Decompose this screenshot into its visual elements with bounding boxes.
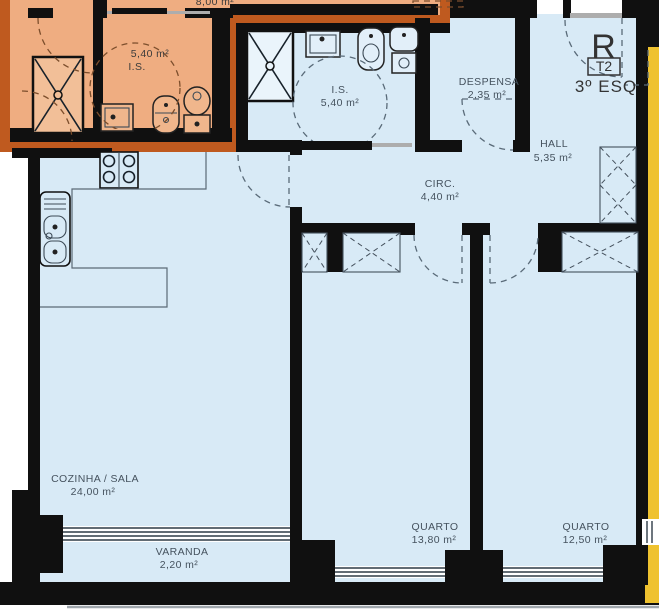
toilet-symbol [390, 27, 418, 73]
is-sliding-door-panel [300, 141, 372, 150]
circ-name-label: CIRC. [425, 178, 456, 190]
quarto2-window [503, 566, 603, 578]
is-name-label: I.S. [331, 84, 348, 96]
floor-plan-page: 8,00 m² 5,40 m² I.S. I.S. 5,40 m² DESPEN… [0, 0, 659, 609]
bidet-symbol [358, 28, 384, 70]
circ-area-label: 4,40 m² [421, 191, 459, 203]
adjacent-is-name-label: I.S. [128, 61, 145, 73]
cozinha-sala-area-label: 24,00 m² [71, 486, 116, 498]
is-sliding-door-track [370, 143, 412, 147]
floor-plan: 8,00 m² 5,40 m² I.S. I.S. 5,40 m² DESPEN… [0, 0, 659, 609]
shower-symbol [247, 31, 293, 101]
quarto1-wardrobe-right [343, 233, 400, 272]
quarto1-name-label: QUARTO [412, 521, 459, 533]
adjacent-right-window [642, 519, 659, 545]
adjacent-sink-symbol [101, 104, 133, 131]
varanda-sliding-window [63, 526, 290, 542]
despensa-name-label: DESPENSA [459, 76, 519, 88]
adjacent-toilet-symbol [184, 87, 210, 133]
entrance-threshold [570, 13, 622, 18]
hall-wardrobe [600, 147, 636, 223]
quarto1-window [335, 566, 445, 578]
cozinha-sala-name-label: COZINHA / SALA [51, 473, 139, 485]
varanda-area-label: 2,20 m² [160, 559, 198, 571]
unit-floor-label: 3º ESQ [575, 77, 637, 96]
varanda-name-label: VARANDA [156, 546, 209, 558]
adjacent-partial-area-label: 8,00 m² [196, 0, 234, 8]
adjacent-sliding-door-panel [112, 8, 167, 14]
quarto2-area-label: 12,50 m² [563, 534, 608, 546]
stove-symbol [100, 152, 138, 188]
hall-area-label: 5,35 m² [534, 152, 572, 164]
quarto1-wardrobe-left [302, 233, 327, 272]
quarto2-name-label: QUARTO [563, 521, 610, 533]
unit-type-label: T2 [596, 58, 613, 74]
bathroom-sink-symbol [306, 31, 340, 57]
hall-name-label: HALL [540, 138, 568, 150]
despensa-area-label: 2,35 m² [468, 89, 506, 101]
adjacent-shower-symbol [33, 57, 83, 133]
is-area-label: 5,40 m² [321, 97, 359, 109]
quarto2-wardrobe [562, 232, 638, 272]
quarto1-area-label: 13,80 m² [412, 534, 457, 546]
kitchen-sink-symbol [40, 192, 70, 266]
adjacent-is-area-label: 5,40 m² [131, 48, 169, 60]
entrance-recess [537, 0, 563, 13]
